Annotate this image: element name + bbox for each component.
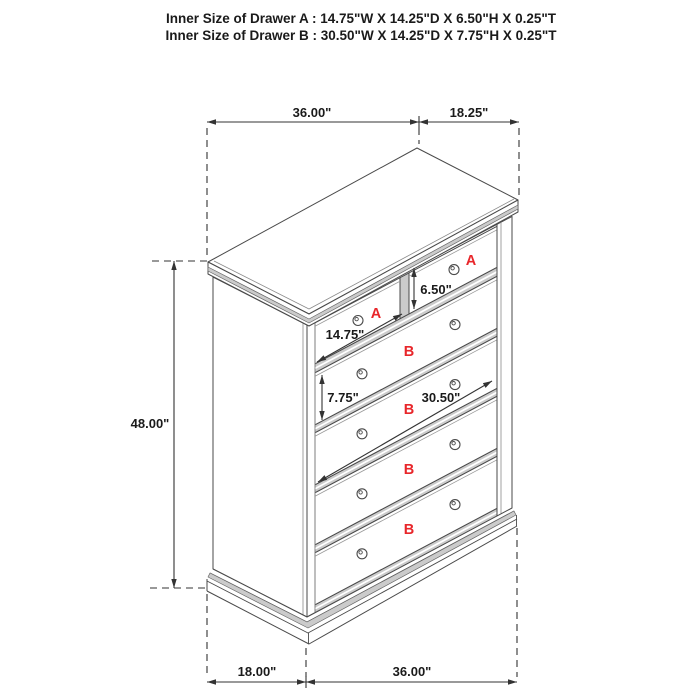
drawer-a1-label: A <box>371 306 382 322</box>
dim-top-width-label: 36.00" <box>293 105 332 120</box>
drawer-b4-label: B <box>404 522 414 538</box>
drawer-b1-label: B <box>404 344 414 360</box>
diagram-svg: 36.00" 18.25" 48.00" 18.00" 36.00" 6.50"… <box>0 0 700 700</box>
dim-drawer-b-height-label: 7.75" <box>327 390 358 405</box>
dim-height-label: 48.00" <box>131 416 170 431</box>
dim-drawer-a-width-label: 14.75" <box>326 327 365 342</box>
dim-drawer-a-height-label: 6.50" <box>420 282 451 297</box>
diagram-canvas: Inner Size of Drawer A : 14.75"W X 14.25… <box>0 0 700 700</box>
drawer-b2-label: B <box>404 402 414 418</box>
dim-bottom-depth-label: 18.00" <box>238 664 277 679</box>
dim-top-depth-label: 18.25" <box>450 105 489 120</box>
drawer-b3-label: B <box>404 462 414 478</box>
dim-drawer-b-width-label: 30.50" <box>422 390 461 405</box>
dim-bottom-width-label: 36.00" <box>393 664 432 679</box>
drawer-a2-label: A <box>466 253 477 269</box>
